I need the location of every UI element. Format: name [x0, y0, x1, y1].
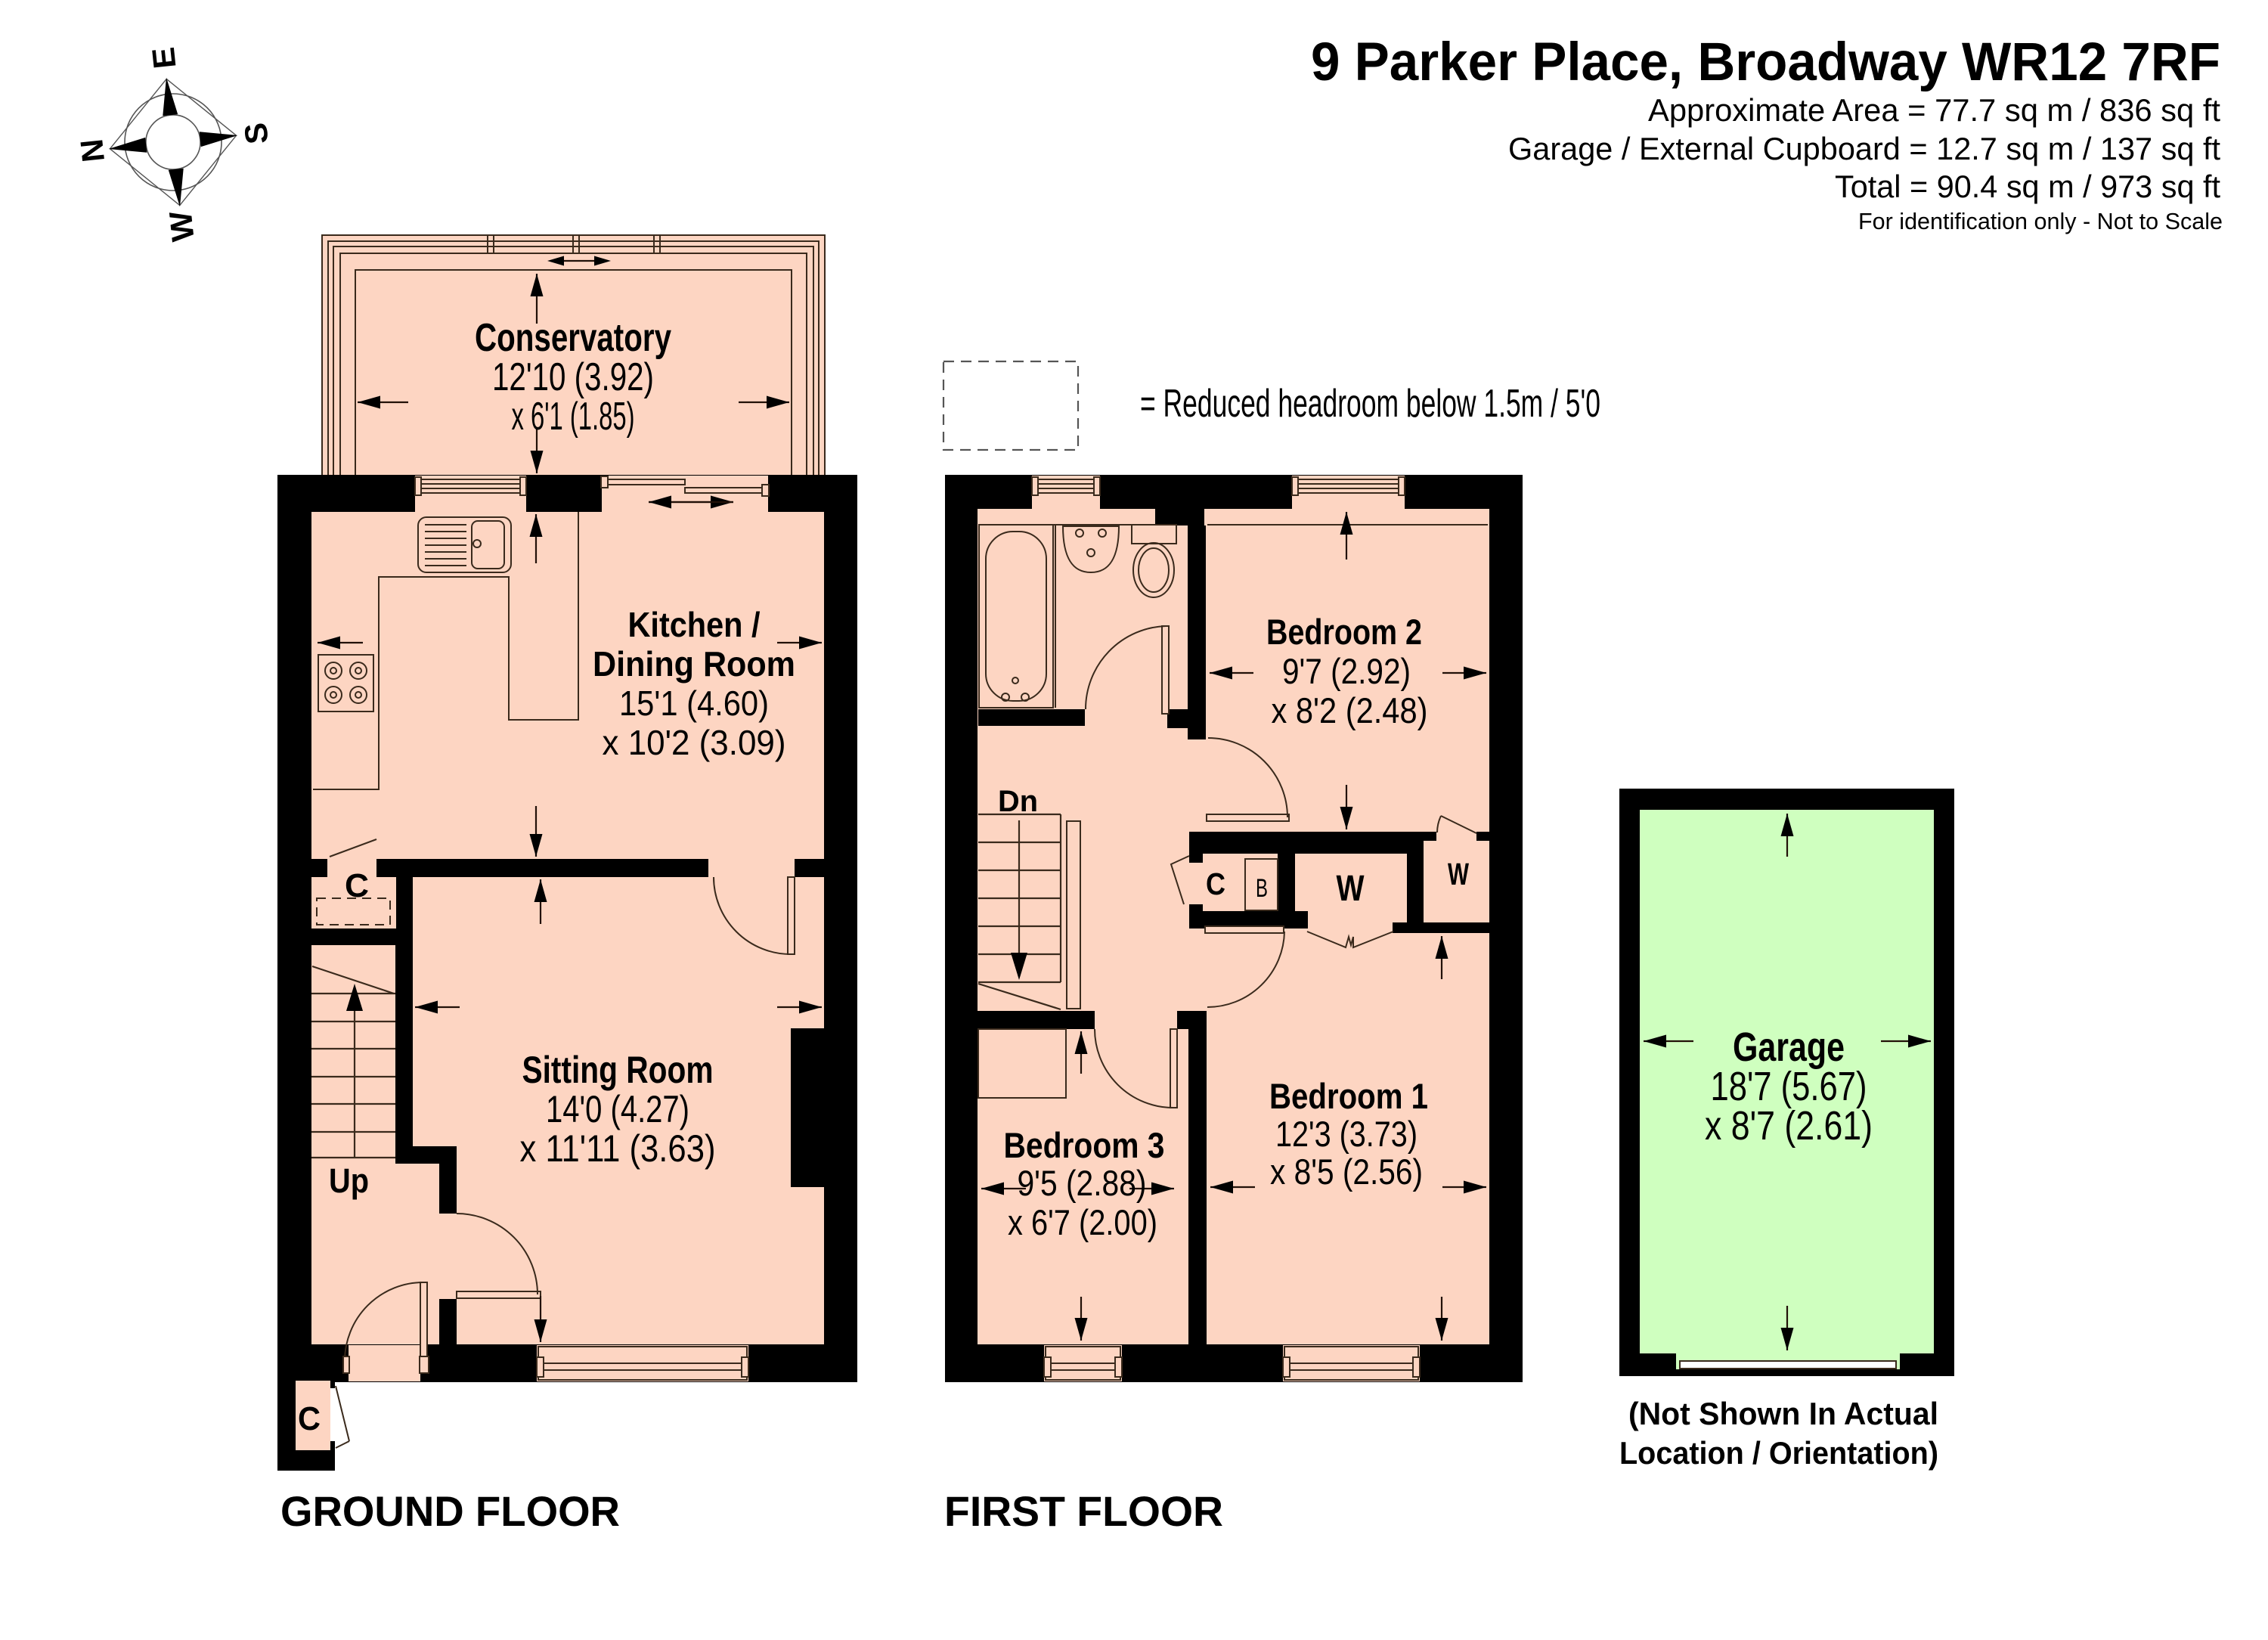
svg-text:9'5 (2.88): 9'5 (2.88)	[1018, 1163, 1147, 1203]
svg-text:W: W	[1337, 869, 1365, 909]
svg-text:For identification only - Not: For identification only - Not to Scale	[1858, 208, 2223, 234]
svg-text:14'0 (4.27): 14'0 (4.27)	[546, 1088, 689, 1130]
svg-text:Bedroom 3: Bedroom 3	[1004, 1125, 1165, 1165]
svg-text:12'10 (3.92): 12'10 (3.92)	[492, 355, 654, 399]
svg-text:Location / Orientation): Location / Orientation)	[1619, 1435, 1938, 1471]
svg-text:Up: Up	[329, 1161, 369, 1200]
svg-text:Approximate Area = 77.7 sq m /: Approximate Area = 77.7 sq m / 836 sq ft	[1648, 92, 2220, 128]
svg-text:12'3 (3.73): 12'3 (3.73)	[1275, 1114, 1417, 1154]
svg-text:Dn: Dn	[998, 785, 1038, 818]
svg-text:Sitting Room: Sitting Room	[522, 1049, 714, 1091]
svg-text:B: B	[1256, 874, 1268, 903]
svg-text:GROUND FLOOR: GROUND FLOOR	[280, 1487, 620, 1535]
svg-text:= Reduced headroom below 1.5m: = Reduced headroom below 1.5m / 5'0	[1140, 382, 1600, 426]
svg-text:Bedroom 2: Bedroom 2	[1266, 612, 1422, 652]
svg-text:E: E	[145, 45, 183, 70]
svg-text:x 8'7 (2.61): x 8'7 (2.61)	[1705, 1103, 1873, 1149]
svg-text:9 Parker Place, Broadway WR12: 9 Parker Place, Broadway WR12 7RF	[1311, 33, 2220, 92]
svg-text:9'7 (2.92): 9'7 (2.92)	[1282, 651, 1411, 691]
svg-text:Garage: Garage	[1733, 1025, 1845, 1070]
svg-text:18'7 (5.67): 18'7 (5.67)	[1711, 1064, 1867, 1109]
svg-text:W: W	[1448, 857, 1469, 891]
svg-text:Dining Room: Dining Room	[593, 644, 795, 684]
svg-text:C: C	[1206, 867, 1225, 901]
svg-text:C: C	[298, 1400, 321, 1437]
svg-text:C: C	[345, 867, 369, 904]
svg-text:S: S	[237, 121, 275, 146]
svg-text:x 11'11 (3.63): x 11'11 (3.63)	[520, 1127, 716, 1170]
svg-text:Conservatory: Conservatory	[475, 316, 671, 360]
svg-text:x 6'7 (2.00): x 6'7 (2.00)	[1008, 1202, 1157, 1242]
svg-text:x 8'5 (2.56): x 8'5 (2.56)	[1270, 1152, 1423, 1192]
svg-text:x 10'2 (3.09): x 10'2 (3.09)	[603, 723, 786, 762]
svg-text:N: N	[73, 138, 111, 164]
svg-text:x 6'1 (1.85): x 6'1 (1.85)	[512, 395, 635, 439]
svg-text:x 8'2 (2.48): x 8'2 (2.48)	[1272, 690, 1428, 730]
svg-text:15'1 (4.60): 15'1 (4.60)	[619, 684, 769, 723]
svg-text:Bedroom 1: Bedroom 1	[1269, 1076, 1428, 1116]
svg-text:Kitchen /: Kitchen /	[628, 605, 761, 644]
svg-text:Garage / External Cupboard = 1: Garage / External Cupboard = 12.7 sq m /…	[1508, 131, 2220, 166]
svg-text:FIRST FLOOR: FIRST FLOOR	[944, 1487, 1223, 1535]
svg-text:W: W	[163, 209, 201, 243]
svg-text:Total = 90.4 sq m / 973 sq ft: Total = 90.4 sq m / 973 sq ft	[1835, 169, 2220, 204]
svg-text:(Not Shown In Actual: (Not Shown In Actual	[1628, 1396, 1938, 1431]
